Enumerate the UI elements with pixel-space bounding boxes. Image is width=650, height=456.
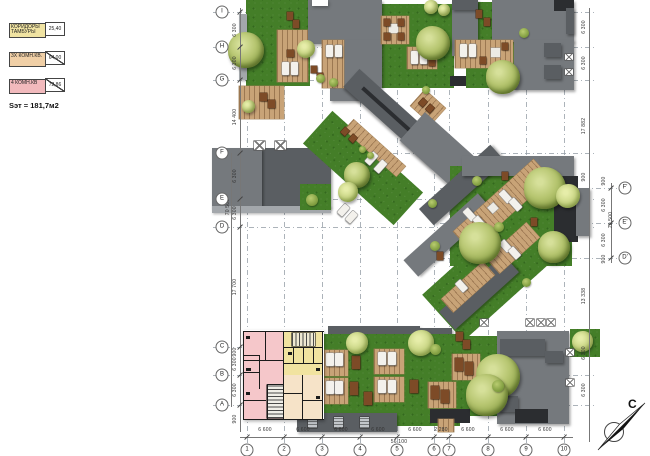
wooden-chair	[502, 172, 508, 180]
axis-bubble: 2	[278, 444, 291, 456]
sun-lounger	[460, 44, 467, 57]
wall-line	[267, 384, 283, 385]
wall-line	[288, 352, 292, 355]
axis-bubble: D	[216, 221, 229, 234]
building-roof-dark	[452, 0, 478, 10]
building-roof-dark	[544, 65, 561, 79]
tree	[486, 60, 520, 94]
sun-lounger	[335, 45, 342, 57]
dimension-label: 6 600	[334, 427, 348, 433]
dimension-label: 6 300	[581, 346, 587, 360]
shrub	[367, 152, 374, 159]
sun-lounger	[388, 352, 396, 365]
wooden-chair	[398, 19, 404, 26]
tree	[538, 231, 570, 263]
table	[389, 24, 398, 33]
axis-bubble: F'	[619, 182, 632, 195]
wooden-chair	[410, 380, 418, 393]
dimension-line	[589, 8, 590, 442]
dimension-label: 6 300	[232, 56, 238, 70]
wooden-chair	[260, 93, 267, 101]
roof-vent	[566, 379, 574, 386]
dimension-label: 900	[601, 177, 607, 186]
axis-bubble: E'	[619, 217, 632, 230]
wooden-chair	[352, 356, 360, 369]
dimension-label: 6 600	[258, 427, 272, 433]
wooden-chair	[384, 19, 390, 26]
axis-bubble: 8	[482, 444, 495, 456]
wall-line	[302, 375, 303, 419]
axis-bubble: A	[216, 399, 229, 412]
shrub	[422, 86, 430, 94]
wall-line	[244, 400, 266, 401]
building-roof-dark	[544, 43, 561, 57]
axis-bubble: 7	[443, 444, 456, 456]
wooden-chair	[463, 340, 470, 349]
axis-bubble: D'	[619, 252, 632, 265]
wall-line	[243, 419, 324, 420]
wooden-chair	[484, 18, 490, 26]
axis-bubble: G	[216, 74, 229, 87]
building-roof-dark	[545, 351, 563, 363]
wall-line	[243, 331, 324, 332]
wall-line	[316, 368, 320, 371]
dimension-line	[240, 8, 241, 432]
wall-line	[302, 400, 322, 401]
roof-vent	[566, 349, 574, 356]
roof-vent	[254, 141, 265, 150]
shrub	[359, 146, 366, 153]
shrub	[430, 241, 440, 251]
wooden-chair	[531, 218, 537, 226]
wooden-chair	[287, 50, 294, 57]
tree	[297, 40, 315, 58]
table	[491, 48, 500, 57]
shrub	[494, 222, 504, 232]
wall-line	[265, 332, 266, 360]
dimension-label: 6 600	[461, 427, 475, 433]
wooden-chair	[455, 358, 463, 371]
sun-lounger	[282, 62, 289, 75]
wall-line	[243, 355, 260, 356]
wall-line	[267, 384, 268, 419]
stairs	[292, 333, 315, 346]
wooden-chair	[502, 43, 508, 50]
wall-line	[283, 332, 284, 419]
wooden-chair	[476, 10, 482, 18]
axis-bubble: C	[216, 341, 229, 354]
wall-line	[244, 360, 283, 361]
roof-vent	[480, 319, 488, 326]
dimension-label: 2 280	[434, 427, 448, 433]
wooden-chair	[311, 66, 317, 73]
axis-bubble: 9	[520, 444, 533, 456]
shrub	[472, 176, 482, 186]
plan-canvas: 6 3006 30014 4006 3006 30017 7009006 300…	[0, 0, 650, 456]
dimension-label: 6 300	[232, 169, 238, 183]
axis-bubble: B	[216, 369, 229, 382]
shrub	[428, 199, 437, 208]
sun-lounger	[378, 352, 386, 365]
wooden-chair	[465, 362, 473, 375]
dimension-label: 900	[232, 415, 238, 424]
dimension-label: 17 882	[581, 118, 587, 135]
hatch-panel	[360, 417, 369, 428]
dimension-overall: 70 500	[608, 212, 614, 229]
dimension-label: 6 600	[408, 427, 422, 433]
wooden-chair	[431, 386, 439, 399]
wooden-chair	[350, 382, 358, 395]
tree	[416, 26, 450, 60]
shrub	[519, 28, 529, 38]
dimension-label: 6 300	[601, 233, 607, 247]
dimension-label: 6 300	[581, 20, 587, 34]
dimension-label: 17 700	[232, 279, 238, 296]
dimension-label: 900	[581, 173, 587, 182]
roof-vent	[275, 141, 286, 150]
wooden-chair	[287, 12, 293, 20]
axis-bubble: 3	[316, 444, 329, 456]
wall-line	[259, 355, 260, 389]
shrub	[329, 78, 338, 87]
sun-lounger	[326, 45, 333, 57]
dimension-label: 6 600	[371, 427, 385, 433]
dimension-label: 6 600	[500, 427, 514, 433]
sun-lounger	[335, 353, 343, 366]
roof-vent	[547, 319, 555, 326]
wooden-chair	[268, 100, 275, 108]
axis-bubble: I	[216, 6, 229, 19]
dimension-label: 14 400	[232, 109, 238, 126]
sun-lounger	[378, 380, 386, 393]
stairs	[267, 385, 283, 418]
shrub	[316, 74, 325, 83]
roof-cutout	[312, 0, 328, 6]
wooden-chair	[480, 57, 486, 64]
wooden-chair	[384, 33, 390, 40]
axis-bubble: 5	[391, 444, 404, 456]
floor-plan-sheet: КОРИДОРЫ ТАМБУРЫ 25,40 3Х КОМН.КВ. 64,00…	[0, 0, 650, 456]
dimension-label: 6 600	[538, 427, 552, 433]
dimension-label: 6 300	[232, 357, 238, 371]
sun-lounger	[326, 381, 334, 394]
dimension-label: 6 300	[232, 206, 238, 220]
wooden-chair	[364, 392, 372, 405]
building-roof-dark	[566, 8, 574, 34]
building-roof	[308, 0, 382, 44]
wooden-chair	[441, 390, 449, 403]
wall-line	[293, 348, 294, 363]
sun-lounger	[326, 353, 334, 366]
sun-lounger	[291, 62, 298, 75]
roof-vent	[537, 319, 545, 326]
axis-bubble: 4	[354, 444, 367, 456]
north-arrow: С	[588, 394, 650, 456]
sun-lounger	[335, 381, 343, 394]
wall-line	[283, 393, 303, 394]
wall-line	[303, 348, 304, 363]
wooden-chair	[456, 332, 463, 341]
dimension-label: 6 300	[581, 383, 587, 397]
axis-bubble: E	[216, 193, 229, 206]
north-label: С	[628, 397, 637, 411]
dimension-label: 6 300	[232, 383, 238, 397]
dimension-label: 13 338	[581, 288, 587, 305]
wooden-chair	[437, 252, 443, 260]
dimension-label: 6 600	[296, 427, 310, 433]
wall-line	[243, 372, 260, 373]
dimension-label: 900	[601, 255, 607, 264]
wall-line	[283, 363, 323, 364]
dimension-label: 900	[232, 348, 238, 357]
sun-lounger	[388, 380, 396, 393]
compass-icon: С	[588, 394, 650, 456]
shrub	[492, 380, 504, 392]
wooden-chair	[293, 20, 299, 28]
wall-line	[313, 348, 314, 363]
wall-line	[316, 396, 320, 399]
dimension-label: 6 300	[232, 23, 238, 37]
shrub	[430, 344, 441, 355]
axis-bubble: H	[216, 41, 229, 54]
wooden-chair	[398, 33, 404, 40]
sun-lounger	[469, 44, 476, 57]
wooden-chair	[429, 59, 435, 66]
roof-vent	[526, 319, 534, 326]
wall-line	[322, 331, 323, 420]
shrub	[306, 194, 318, 206]
roof-vent	[565, 54, 573, 60]
shrub	[522, 278, 531, 287]
wall-line	[246, 336, 250, 339]
building-roof-black	[450, 76, 466, 86]
wall-line	[246, 368, 251, 371]
wall-line	[246, 392, 250, 395]
sun-lounger	[345, 210, 358, 224]
sun-lounger	[411, 51, 418, 64]
roof-vent	[565, 69, 573, 75]
dimension-label: 6 300	[581, 56, 587, 70]
axis-bubble: 1	[241, 444, 254, 456]
axis-bubble: 6	[428, 444, 441, 456]
building-roof-dark	[500, 339, 545, 356]
dimension-label: 6 300	[601, 198, 607, 212]
building-roof-black	[515, 409, 548, 423]
axis-bubble: F	[216, 147, 229, 160]
axis-bubble: 10	[558, 444, 571, 456]
